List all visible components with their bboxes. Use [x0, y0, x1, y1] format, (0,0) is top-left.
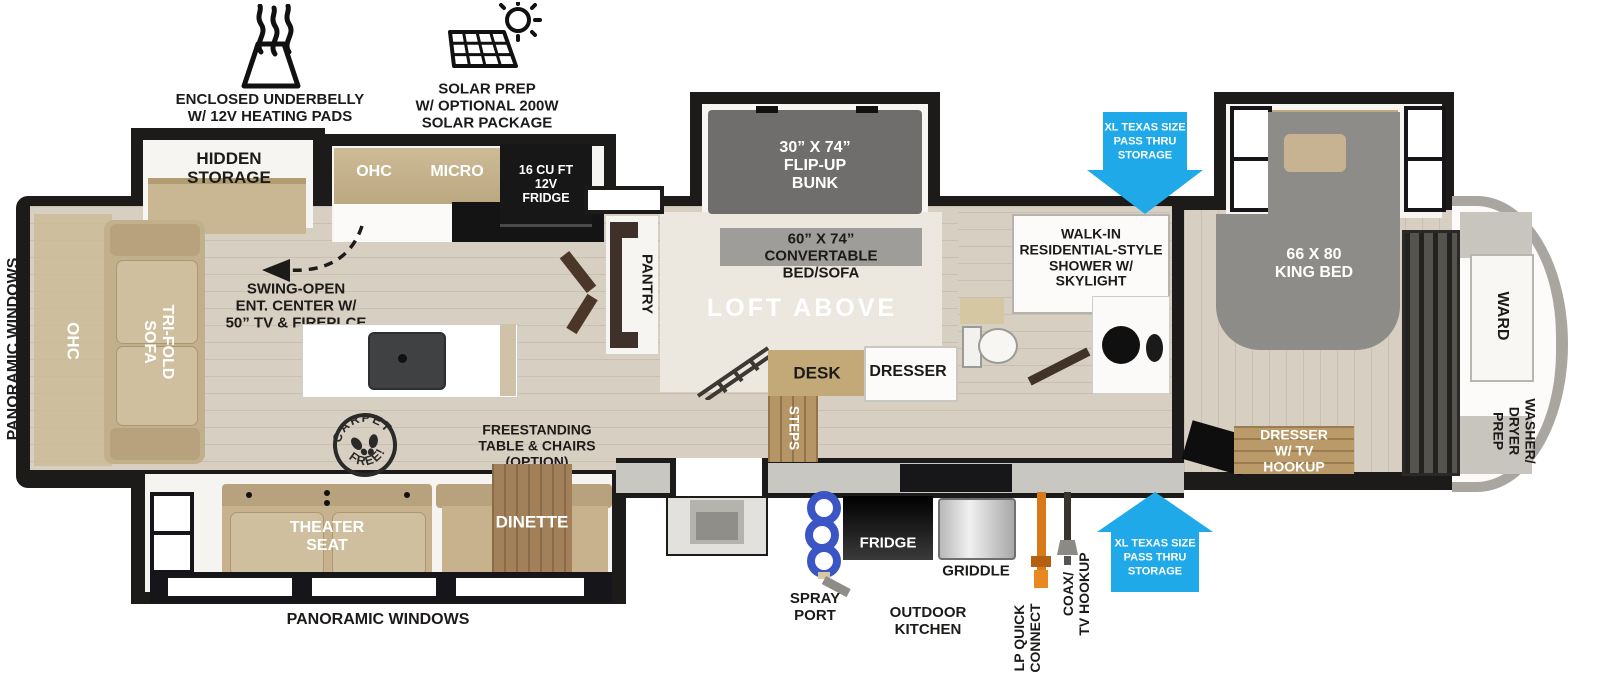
pantry-label: PANTRY	[638, 254, 655, 314]
freestanding-table-label: FREESTANDING TABLE & CHAIRS (OPTION)	[478, 422, 595, 469]
entry-door-opening	[670, 458, 768, 498]
cupholder	[404, 492, 410, 498]
outdoor-kitchen-hatch	[900, 464, 1012, 492]
bunk-dresser-label: DRESSER	[869, 363, 946, 381]
entry-door-frame	[584, 186, 664, 214]
fridge-12v-label: 16 CU FT 12V FRIDGE	[519, 163, 573, 205]
bedroom-dresser-label: DRESSER W/ TV HOOKUP	[1260, 427, 1328, 474]
window-pane	[168, 578, 292, 596]
window-pane	[312, 578, 436, 596]
outdoor-kitchen-label: OUTDOOR KITCHEN	[890, 605, 967, 639]
kitchen-ohc-label: OHC	[356, 163, 392, 181]
dinette-label: DINETTE	[496, 512, 569, 531]
king-bed-label: 66 X 80 KING BED	[1275, 246, 1353, 282]
rear-ohc-label: OHC	[63, 322, 82, 360]
flip-up-bunk-label: 30” X 74” FLIP-UP BUNK	[779, 139, 850, 193]
lp-connector-tip	[1034, 570, 1048, 588]
ward-label: WARD	[1493, 292, 1511, 341]
window-bar	[1234, 157, 1268, 161]
window-bar	[1408, 157, 1442, 161]
steps-label: STEPS	[786, 406, 801, 450]
washer-dryer-label: WASHER/ DRYER PREP	[1490, 398, 1537, 463]
rv-floorplan: ENCLOSED UNDERBELLY W/ 12V HEATING PADS …	[0, 0, 1600, 685]
heating-pad-icon	[228, 4, 312, 92]
cupholder	[324, 490, 330, 496]
bed-slide-window-right	[1404, 106, 1446, 212]
coax-tv-label: COAX/ TV HOOKUP	[1061, 552, 1093, 635]
sofa-armrest-bottom	[110, 428, 200, 460]
slide-left-window	[150, 492, 194, 574]
vanity-basin	[1146, 334, 1163, 362]
griddle	[938, 498, 1016, 560]
sink-faucet	[398, 354, 407, 363]
solar-label: SOLAR PREP W/ OPTIONAL 200W SOLAR PACKAG…	[415, 82, 558, 133]
cap-shelf-top	[1460, 212, 1532, 258]
panoramic-left-label: PANORAMIC WINDOWS	[5, 258, 23, 441]
shower-label: WALK-IN RESIDENTIAL-STYLE SHOWER W/ SKYL…	[1019, 226, 1162, 289]
micro-label: MICRO	[430, 163, 483, 181]
window-bar	[154, 531, 190, 535]
entry-steps-inner2	[696, 512, 738, 540]
pass-thru-top-label: XL TEXAS SIZE PASS THRU STORAGE	[1104, 121, 1185, 162]
carpet-free-stamp: CARPET FREE!	[323, 403, 406, 486]
lp-connector	[1031, 556, 1051, 567]
vanity-sink	[1102, 326, 1140, 364]
lp-quick-connect-label: LP QUICK CONNECT	[1012, 603, 1044, 672]
toilet-bowl	[978, 328, 1018, 364]
convertible-bed-label: 60” X 74” CONVERTABLE BED/SOFA	[764, 232, 877, 283]
underbelly-label: ENCLOSED UNDERBELLY W/ 12V HEATING PADS	[176, 92, 365, 126]
hidden-storage-label: HIDDEN STORAGE	[187, 149, 271, 187]
bunk-clip	[856, 106, 878, 113]
window-pane	[456, 578, 584, 596]
griddle-label: GRIDDLE	[942, 564, 1010, 581]
pass-thru-bottom-label: XL TEXAS SIZE PASS THRU STORAGE	[1114, 537, 1195, 578]
theater-seat-label: THEATER SEAT	[290, 519, 364, 555]
bunk-clip	[756, 106, 778, 113]
cupholder	[324, 500, 330, 506]
solar-prep-icon	[442, 2, 542, 84]
island-sink	[368, 332, 446, 390]
tri-fold-sofa-label: TRI-FOLD SOFA	[140, 305, 176, 380]
bed-slide-window-left	[1230, 106, 1272, 212]
island-end-panel	[500, 324, 516, 396]
desk-label: DESK	[793, 363, 840, 382]
bedroom-closet	[1402, 230, 1460, 476]
sofa-armrest-top	[110, 224, 200, 256]
cupholder	[246, 492, 252, 498]
coax-cable	[1064, 492, 1071, 542]
swing-open-arrow	[258, 216, 370, 290]
bed-pillow	[1284, 134, 1346, 172]
pantry-shelf-notch	[622, 238, 638, 332]
loft-above-label: LOFT ABOVE	[707, 294, 897, 322]
panoramic-bottom-label: PANORAMIC WINDOWS	[287, 611, 470, 629]
bath-cabinet	[960, 298, 1004, 324]
outdoor-fridge-label: FRIDGE	[860, 536, 917, 553]
spray-port-label: SPRAY PORT	[790, 591, 840, 625]
pass-thru-arrow-bottom-head	[1097, 492, 1213, 532]
